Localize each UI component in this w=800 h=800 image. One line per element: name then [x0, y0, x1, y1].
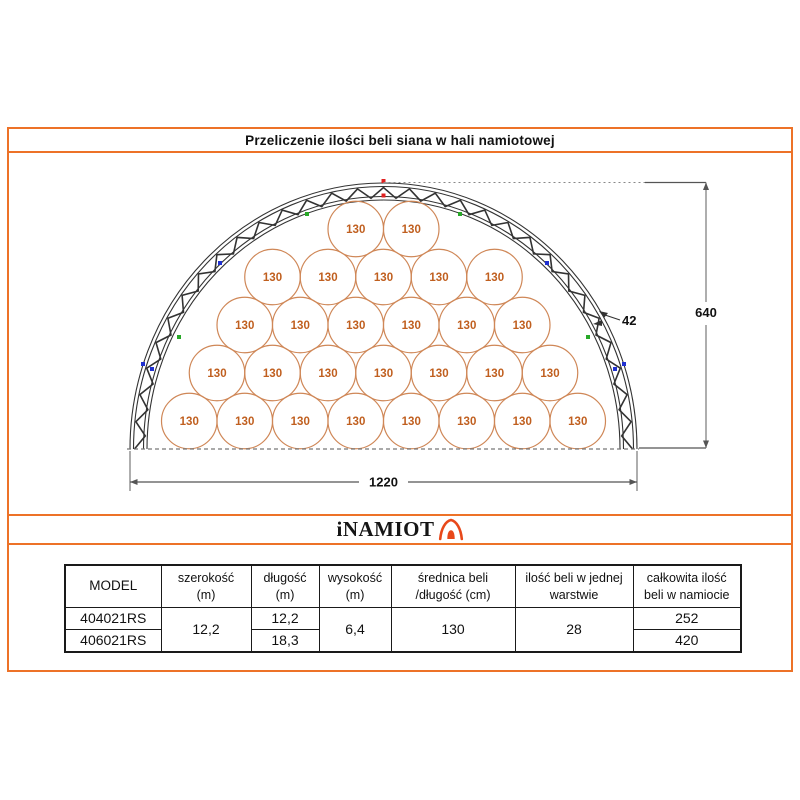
logo-text: iNAMIOT: [337, 517, 435, 542]
bale-label: 130: [235, 416, 254, 428]
bale-label: 130: [346, 416, 365, 428]
cell-dlugosc-2: 18,3: [251, 630, 319, 653]
bale-label: 130: [457, 320, 476, 332]
truss-marker-blue: [613, 367, 617, 371]
bale-label: 130: [513, 416, 532, 428]
page-title: Przeliczenie ilości beli siana w hali na…: [245, 133, 555, 148]
bale-label: 130: [180, 416, 199, 428]
truss-marker-red: [382, 194, 386, 198]
bale-label: 130: [402, 320, 421, 332]
height-dim-label: 640: [695, 305, 717, 320]
drawing-section: 1301301301301301301301301301301301301301…: [9, 151, 791, 514]
truss-dim-leader: [605, 315, 620, 320]
height-dim-arrow-top: [703, 183, 709, 191]
height-dim-arrow-bottom: [703, 441, 709, 449]
bale-label: 130: [457, 416, 476, 428]
table-section: MODEL szerokość (m) długość (m) wysokość…: [9, 543, 791, 670]
truss-marker-green: [458, 212, 462, 216]
bale-label: 130: [291, 320, 310, 332]
bale-label: 130: [402, 416, 421, 428]
bale-label: 130: [374, 368, 393, 380]
width-dim-arrow-left: [130, 479, 138, 485]
bale-label: 130: [429, 368, 448, 380]
col-header-model: MODEL: [65, 565, 161, 608]
table-header-row: MODEL szerokość (m) długość (m) wysokość…: [65, 565, 741, 608]
title-bar: Przeliczenie ilości beli siana w hali na…: [9, 129, 791, 151]
truss-marker-green: [305, 212, 309, 216]
bale-label: 130: [263, 368, 282, 380]
sheet-frame: Przeliczenie ilości beli siana w hali na…: [7, 127, 793, 672]
bale-label: 130: [291, 416, 310, 428]
bale-label: 130: [485, 272, 504, 284]
bale-label: 130: [540, 368, 559, 380]
bale-label: 130: [402, 224, 421, 236]
bale-label: 130: [568, 416, 587, 428]
cell-srednica: 130: [391, 608, 515, 653]
bale-label: 130: [235, 320, 254, 332]
col-header-srednica: średnica beli /długość (cm): [391, 565, 515, 608]
bale-label: 130: [207, 368, 226, 380]
bale-label: 130: [318, 368, 337, 380]
table-row-404021RS: 404021RS 12,2 12,2 6,4 130 28 252: [65, 608, 741, 630]
truss-marker-blue: [150, 367, 154, 371]
cell-wysokosc: 6,4: [319, 608, 391, 653]
truss-marker-blue: [622, 362, 626, 366]
width-dim-arrow-right: [630, 479, 638, 485]
col-header-calkowita: całkowita ilość beli w namiocie: [633, 565, 741, 608]
spec-table: MODEL szerokość (m) długość (m) wysokość…: [64, 564, 742, 653]
cell-model-1: 404021RS: [65, 608, 161, 630]
sheet-page: Przeliczenie ilości beli siana w hali na…: [0, 0, 800, 800]
truss-arch: [130, 183, 637, 449]
cell-model-2: 406021RS: [65, 630, 161, 653]
bale-label: 130: [374, 272, 393, 284]
col-header-wysokosc: wysokość (m): [319, 565, 391, 608]
tent-icon: [438, 518, 464, 541]
bale-label: 130: [485, 368, 504, 380]
bale-label: 130: [318, 272, 337, 284]
col-header-szerokosc: szerokość (m): [161, 565, 251, 608]
truss-marker-blue: [141, 362, 145, 366]
truss-marker-blue: [545, 261, 549, 265]
logo-bar: iNAMIOT: [9, 514, 791, 543]
truss-outer-chord: [130, 183, 637, 449]
truss-marker-blue: [218, 261, 222, 265]
bale-label: 130: [346, 320, 365, 332]
bale-label: 130: [513, 320, 532, 332]
cell-ilosc-warstwa: 28: [515, 608, 633, 653]
truss-dim-arrow-outer: [599, 311, 608, 318]
cell-szerokosc: 12,2: [161, 608, 251, 653]
truss-marker-green: [586, 335, 590, 339]
tent-cross-section-drawing: 1301301301301301301301301301301301301301…: [9, 153, 791, 514]
cell-calkowita-1: 252: [633, 608, 741, 630]
truss-dim-label: 42: [622, 313, 636, 328]
truss-marker-green: [177, 335, 181, 339]
col-header-dlugosc: długość (m): [251, 565, 319, 608]
cell-dlugosc-1: 12,2: [251, 608, 319, 630]
bale-label: 130: [263, 272, 282, 284]
width-dim-label: 1220: [369, 475, 398, 490]
bale-label: 130: [429, 272, 448, 284]
bale-label: 130: [346, 224, 365, 236]
col-header-ilosc-warstwa: ilość beli w jednej warstwie: [515, 565, 633, 608]
cell-calkowita-2: 420: [633, 630, 741, 653]
